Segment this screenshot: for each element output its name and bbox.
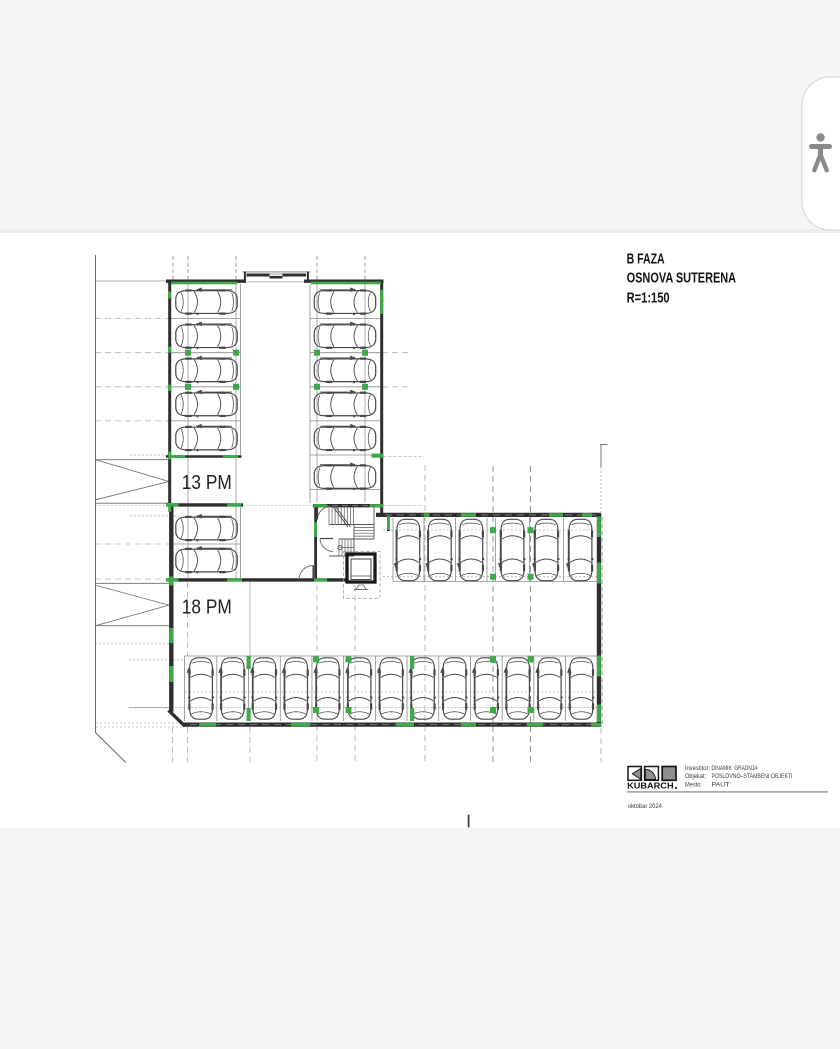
svg-text:B FAZA: B FAZA bbox=[627, 251, 665, 268]
svg-text:Mesto:: Mesto: bbox=[685, 781, 702, 788]
svg-text:oktobar 2024: oktobar 2024 bbox=[628, 803, 663, 810]
svg-text:POSLOVNO–STAMBENI OBJEKTI: POSLOVNO–STAMBENI OBJEKTI bbox=[712, 773, 793, 780]
svg-text:DINAMIK GRADNJA: DINAMIK GRADNJA bbox=[712, 765, 759, 772]
svg-text:18 PM: 18 PM bbox=[182, 596, 232, 618]
svg-text:Investitor:: Investitor: bbox=[685, 765, 710, 772]
svg-text:R=1:150: R=1:150 bbox=[627, 290, 670, 307]
svg-text:Objekat:: Objekat: bbox=[685, 773, 706, 780]
svg-text:PAUT: PAUT bbox=[712, 781, 730, 788]
svg-text:KUBARCH: KUBARCH bbox=[627, 781, 674, 791]
svg-text:13 PM: 13 PM bbox=[182, 472, 232, 494]
svg-text:OSNOVA SUTERENA: OSNOVA SUTERENA bbox=[627, 270, 737, 287]
